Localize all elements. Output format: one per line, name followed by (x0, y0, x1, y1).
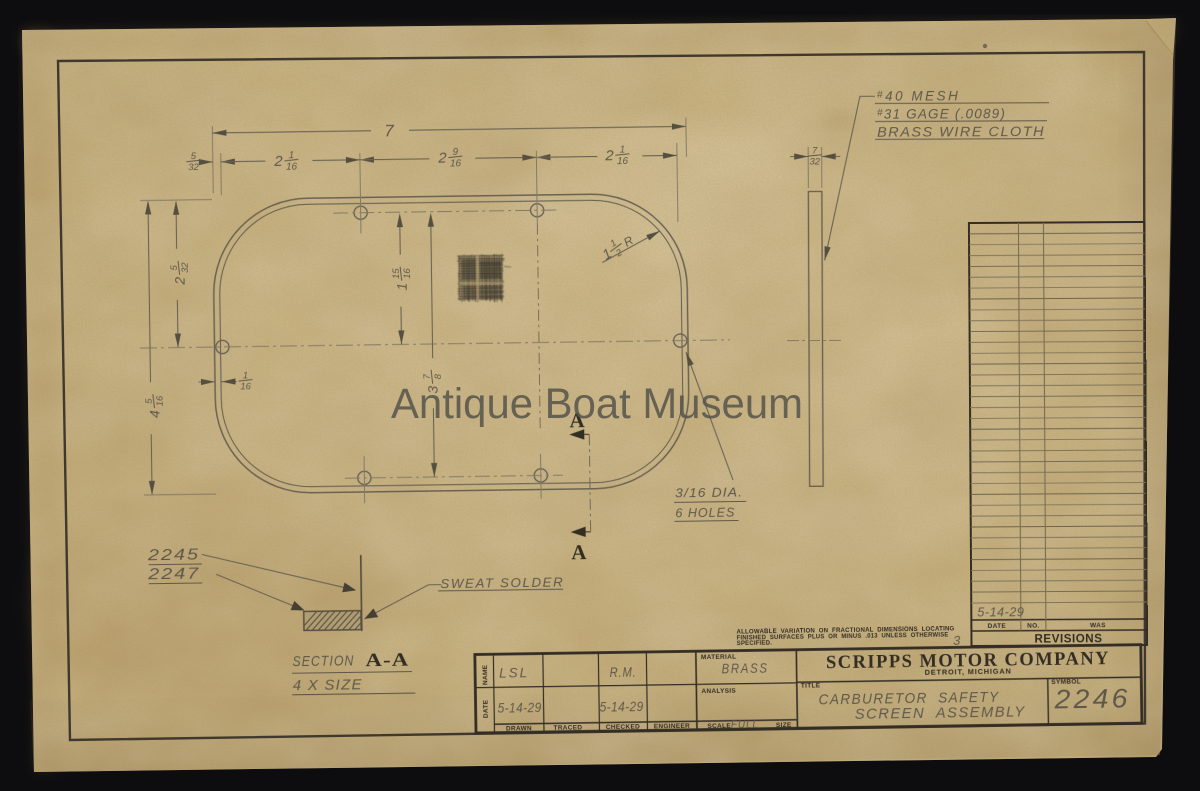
svg-text:SPECIFIED.: SPECIFIED. (737, 641, 773, 648)
svg-text:7: 7 (384, 121, 394, 140)
svg-text:16: 16 (450, 158, 462, 169)
svg-text:2247: 2247 (147, 566, 201, 584)
svg-text:DATE: DATE (483, 699, 490, 718)
svg-text:A-A: A-A (365, 650, 409, 672)
svg-text:4 X SIZE: 4 X SIZE (293, 677, 363, 694)
svg-text:REVISIONS: REVISIONS (1034, 633, 1102, 645)
svg-text:WAS: WAS (1090, 622, 1106, 629)
svg-text:SCREEN ASSEMBLY: SCREEN ASSEMBLY (855, 703, 1026, 723)
svg-text:3/16 DIA.: 3/16 DIA. (675, 485, 743, 500)
svg-text:FULL: FULL (731, 717, 759, 731)
svg-text:6 HOLES: 6 HOLES (675, 505, 735, 520)
svg-text:DETROIT, MICHIGAN: DETROIT, MICHIGAN (925, 669, 1012, 677)
svg-text:SWEAT SOLDER: SWEAT SOLDER (440, 575, 564, 591)
svg-text:ENGINEER: ENGINEER (654, 723, 690, 731)
svg-text:32: 32 (180, 262, 191, 273)
svg-text:CHECKED: CHECKED (606, 724, 640, 732)
svg-text:BRASS WIRE CLOTH: BRASS WIRE CLOTH (877, 124, 1045, 140)
svg-text:16: 16 (617, 156, 629, 167)
svg-text:SECTION: SECTION (292, 653, 354, 670)
svg-text:16: 16 (155, 395, 166, 406)
svg-text:3: 3 (953, 633, 961, 648)
svg-text:TITLE: TITLE (801, 682, 821, 689)
svg-text:NAME: NAME (482, 664, 489, 685)
svg-text:2: 2 (273, 153, 283, 170)
svg-text:2246: 2246 (1053, 683, 1130, 714)
svg-text:BRASS: BRASS (721, 660, 768, 677)
svg-text:2: 2 (172, 277, 188, 286)
svg-text:2: 2 (604, 147, 614, 164)
svg-text:32: 32 (188, 162, 199, 173)
svg-text:SIZE: SIZE (776, 722, 792, 729)
svg-text:16: 16 (402, 268, 413, 279)
svg-text:2245: 2245 (147, 547, 201, 565)
svg-text:16: 16 (286, 162, 298, 173)
svg-text:5-14-29: 5-14-29 (977, 604, 1024, 619)
svg-text:TRACED: TRACED (553, 725, 582, 732)
svg-text:Antique Boat Museum: Antique Boat Museum (391, 380, 803, 428)
svg-text:SCALE: SCALE (707, 723, 731, 730)
svg-text:1: 1 (394, 283, 410, 291)
svg-text:R.M.: R.M. (610, 665, 637, 680)
svg-text:4: 4 (146, 410, 162, 418)
svg-text:A: A (571, 540, 587, 564)
svg-text:1: 1 (243, 370, 248, 381)
svg-text:32: 32 (809, 156, 820, 167)
svg-text:DATE: DATE (988, 623, 1007, 630)
svg-text:#40 MESH: #40 MESH (877, 88, 960, 103)
svg-text:#31 GAGE (.0089): #31 GAGE (.0089) (877, 106, 1006, 122)
svg-text:2: 2 (437, 150, 447, 167)
svg-text:NO.: NO. (1027, 623, 1040, 630)
svg-text:16: 16 (240, 381, 251, 392)
svg-text:8: 8 (433, 373, 444, 379)
svg-text:5-14-29: 5-14-29 (600, 699, 644, 715)
svg-text:DRAWN: DRAWN (506, 725, 532, 732)
svg-text:ANALYSIS: ANALYSIS (701, 688, 736, 696)
svg-text:5-14-29: 5-14-29 (498, 700, 542, 716)
svg-text:LSL: LSL (499, 665, 529, 680)
